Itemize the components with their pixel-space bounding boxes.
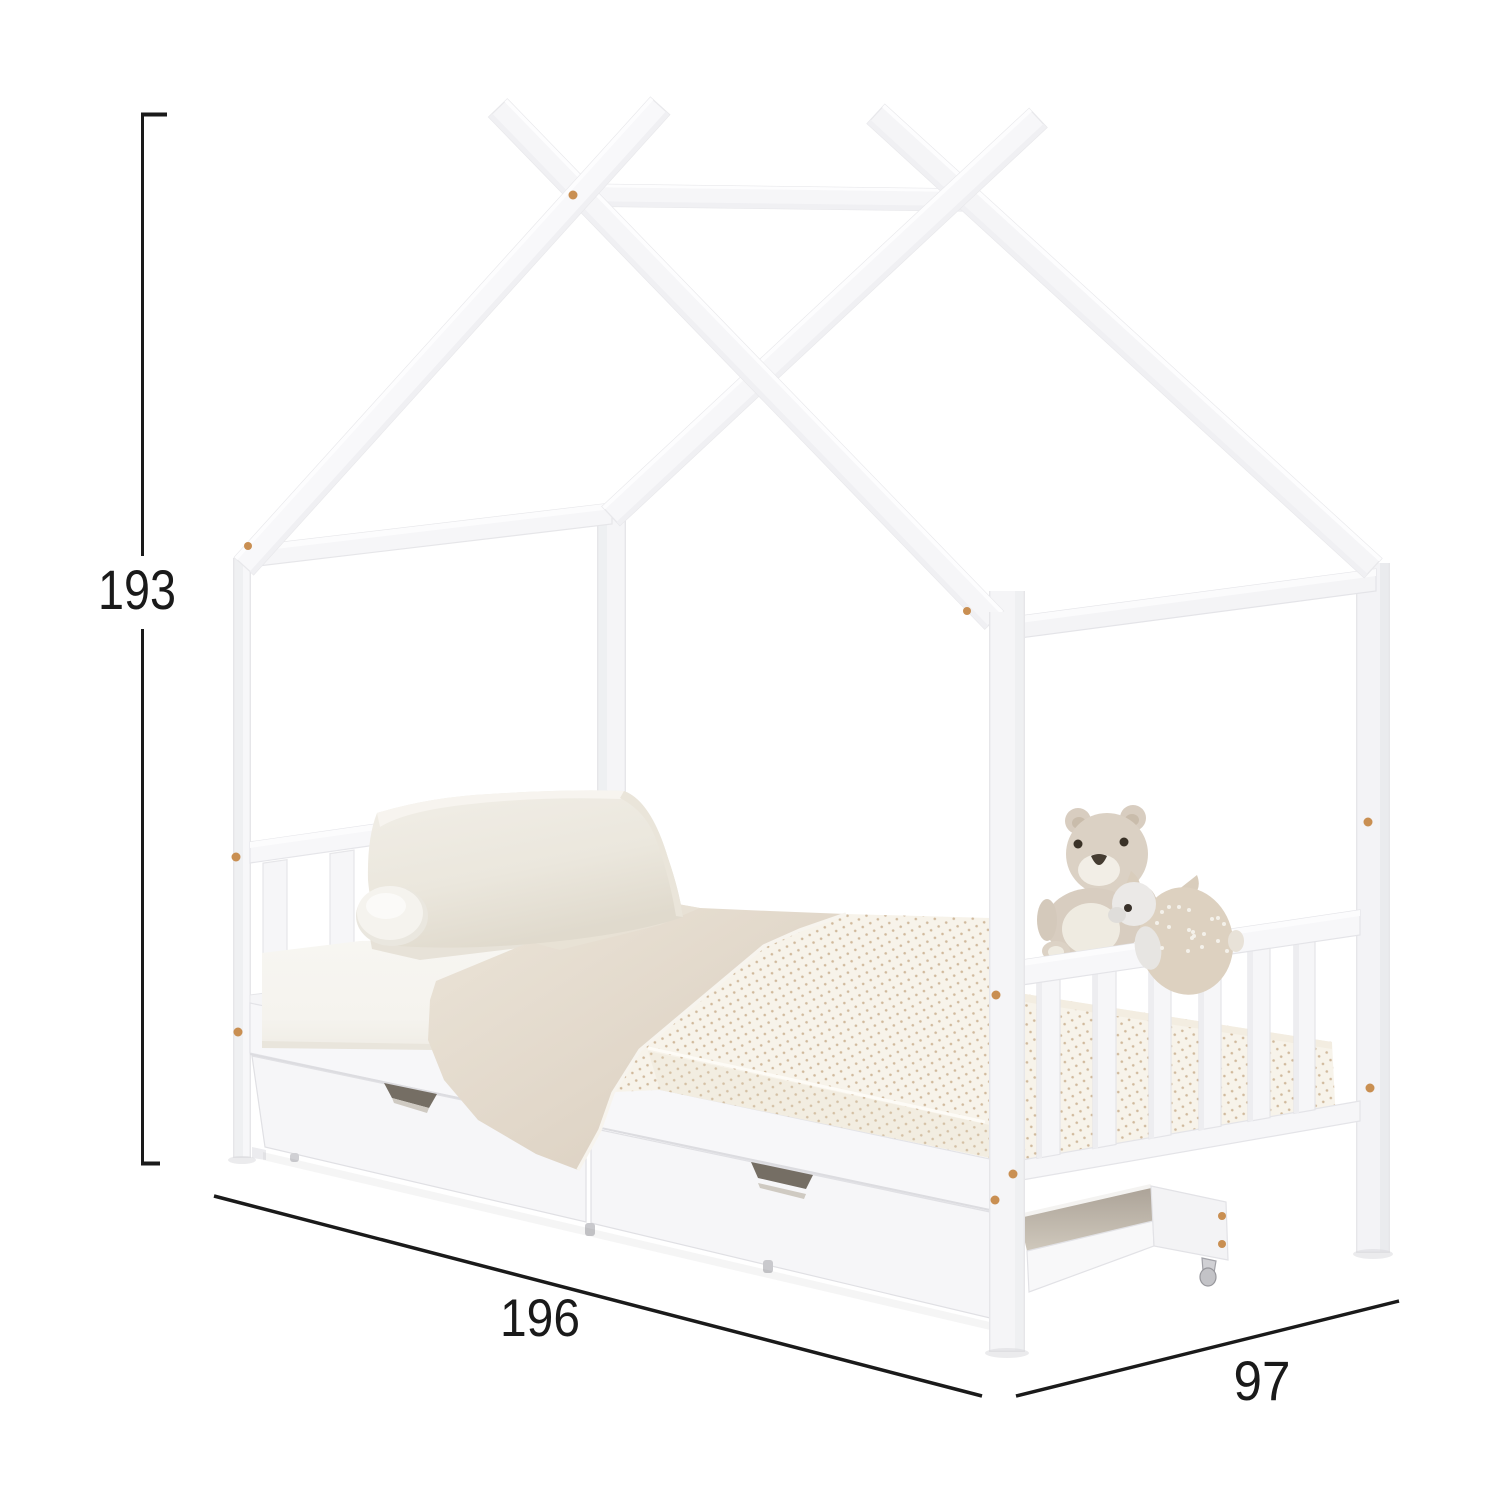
svg-text:193: 193 [98, 558, 176, 621]
svg-text:196: 196 [500, 1289, 580, 1348]
svg-text:97: 97 [1234, 1349, 1291, 1412]
